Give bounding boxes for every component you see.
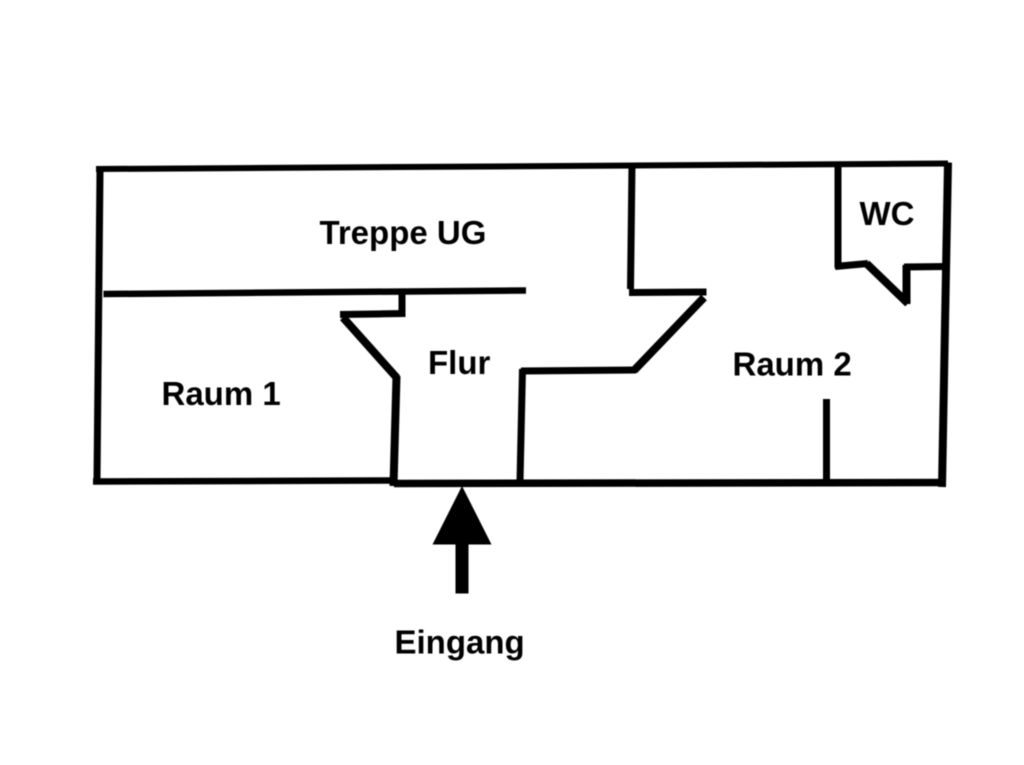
svg-text:WC: WC xyxy=(860,195,915,232)
svg-text:Treppe UG: Treppe UG xyxy=(320,214,487,251)
svg-text:Flur: Flur xyxy=(428,344,490,381)
svg-text:Raum 1: Raum 1 xyxy=(162,375,281,412)
svg-text:Eingang: Eingang xyxy=(395,624,525,661)
svg-text:Raum 2: Raum 2 xyxy=(733,346,852,383)
